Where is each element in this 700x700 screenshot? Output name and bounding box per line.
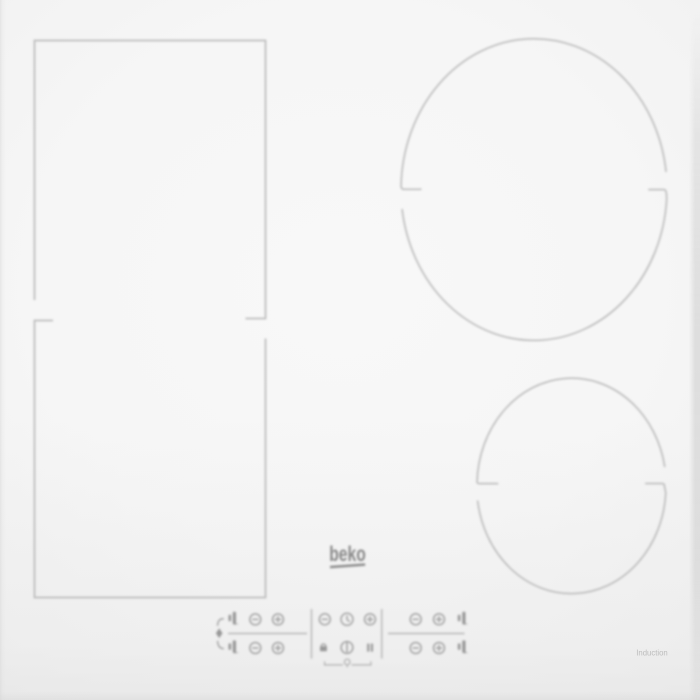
svg-text:beko: beko — [329, 542, 366, 566]
svg-text:Induction: Induction — [636, 648, 668, 657]
